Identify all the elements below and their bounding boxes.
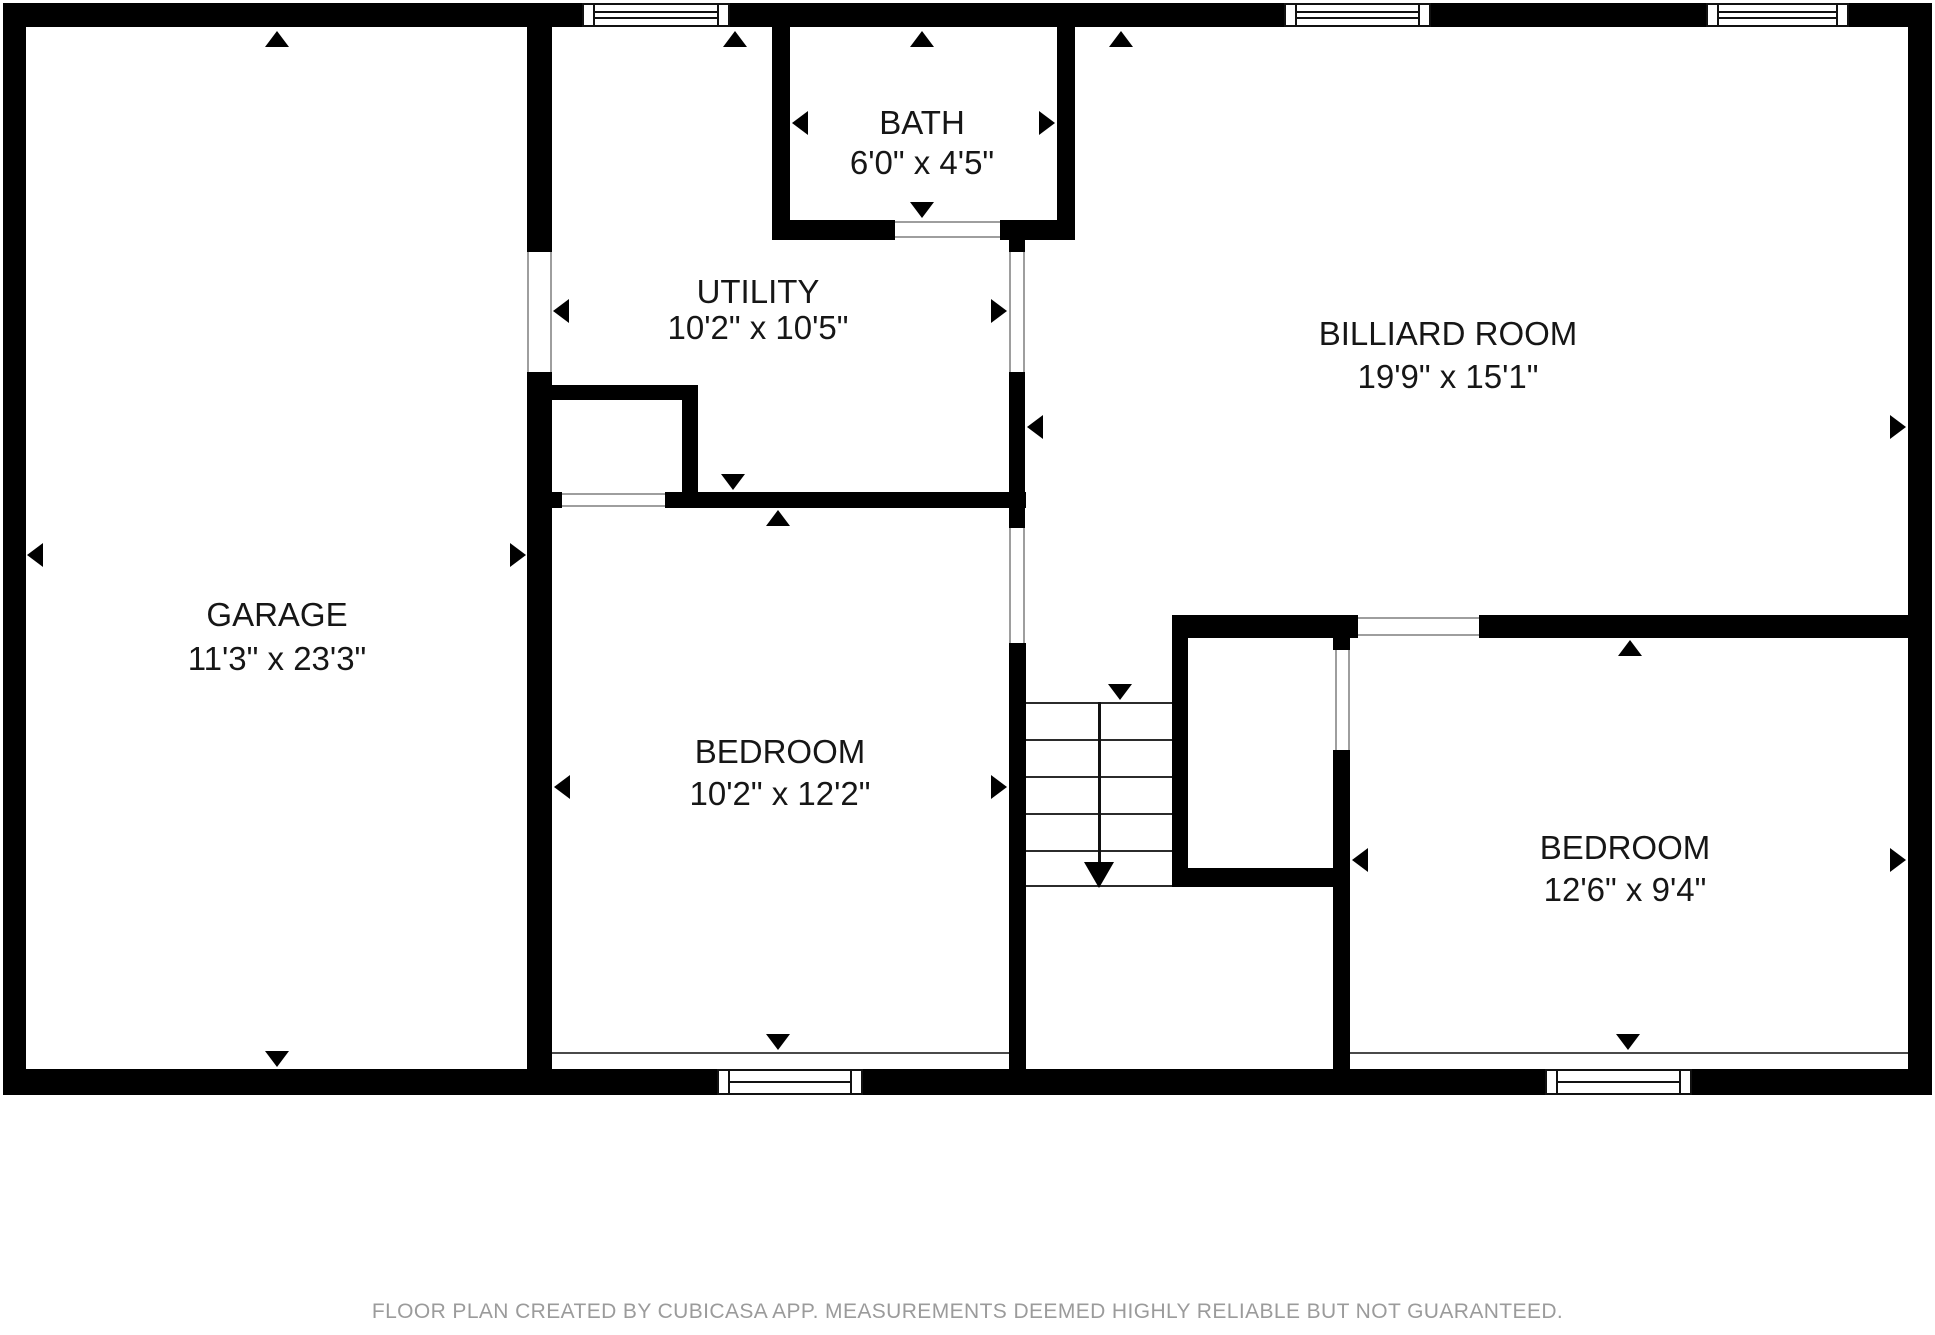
stairs-direction-line bbox=[1098, 702, 1101, 862]
measure-arrow-up-icon bbox=[1109, 31, 1133, 47]
window-glass-line bbox=[1296, 11, 1419, 13]
measure-arrow-down-icon bbox=[766, 1034, 790, 1050]
wall-segment bbox=[1333, 750, 1350, 887]
measure-arrow-up-icon bbox=[766, 510, 790, 526]
measure-arrow-down-icon bbox=[910, 202, 934, 218]
measure-arrow-right-icon bbox=[1039, 111, 1055, 135]
wall-segment bbox=[772, 220, 895, 240]
wall-segment bbox=[1009, 643, 1026, 1069]
door-opening-line bbox=[1009, 252, 1011, 372]
window-glass-line bbox=[594, 17, 718, 19]
wall-segment bbox=[1009, 508, 1025, 528]
measure-arrow-down-icon bbox=[265, 1051, 289, 1067]
door-opening-line bbox=[1023, 528, 1025, 643]
door-opening-line bbox=[562, 493, 665, 495]
wall-segment bbox=[682, 400, 698, 492]
wall-segment bbox=[772, 27, 790, 237]
wall-segment bbox=[548, 385, 698, 400]
wall-segment bbox=[1009, 237, 1025, 252]
room-boundary-line bbox=[552, 1052, 1009, 1054]
wall-segment bbox=[1057, 27, 1075, 237]
wall-segment bbox=[863, 1069, 1545, 1095]
measure-arrow-left-icon bbox=[1027, 415, 1043, 439]
door-opening-line bbox=[1358, 617, 1479, 619]
door-opening-line bbox=[895, 221, 1000, 223]
window-frame-line bbox=[1418, 5, 1420, 25]
measure-arrow-up-icon bbox=[723, 31, 747, 47]
wall-segment bbox=[1431, 3, 1706, 27]
door-opening-line bbox=[1023, 252, 1025, 372]
window bbox=[1545, 1069, 1692, 1095]
window-frame-line bbox=[1717, 5, 1719, 25]
footer-disclaimer: FLOOR PLAN CREATED BY CUBICASA APP. MEAS… bbox=[372, 1300, 1563, 1324]
window-glass-line bbox=[1718, 11, 1837, 13]
window bbox=[717, 1069, 863, 1095]
door-opening-line bbox=[1335, 650, 1337, 750]
window-frame-line bbox=[593, 5, 595, 25]
measure-arrow-down-icon bbox=[1616, 1034, 1640, 1050]
measure-arrow-right-icon bbox=[510, 543, 526, 567]
wall-segment bbox=[527, 372, 552, 1069]
room-label-garage: GARAGE bbox=[206, 596, 347, 634]
measure-arrow-up-icon bbox=[1618, 640, 1642, 656]
measure-arrow-right-icon bbox=[991, 775, 1007, 799]
measure-arrow-down-icon bbox=[1108, 684, 1132, 700]
wall-segment bbox=[1333, 887, 1350, 1069]
window-glass-line bbox=[1296, 17, 1419, 19]
window bbox=[582, 3, 730, 27]
window-glass-line bbox=[1718, 17, 1837, 19]
window-glass-line bbox=[1557, 1081, 1680, 1083]
window bbox=[1284, 3, 1431, 27]
measure-arrow-right-icon bbox=[1890, 848, 1906, 872]
room-label-billiard-room: BILLIARD ROOM bbox=[1319, 315, 1578, 353]
door-opening-line bbox=[550, 252, 552, 372]
window-frame-line bbox=[1836, 5, 1838, 25]
wall-segment bbox=[1479, 615, 1908, 638]
door-opening-line bbox=[1358, 634, 1479, 636]
measure-arrow-right-icon bbox=[991, 299, 1007, 323]
measure-arrow-left-icon bbox=[27, 543, 43, 567]
door-opening-line bbox=[1348, 650, 1350, 750]
window bbox=[1706, 3, 1849, 27]
room-boundary-line bbox=[1350, 1052, 1908, 1054]
wall-segment bbox=[1692, 1069, 1932, 1095]
room-dims-bedroom-right: 12'6" x 9'4" bbox=[1544, 871, 1707, 909]
measure-arrow-right-icon bbox=[1890, 415, 1906, 439]
wall-segment bbox=[1908, 3, 1932, 1095]
room-dims-utility: 10'2" x 10'5" bbox=[668, 309, 849, 347]
wall-segment bbox=[527, 27, 552, 252]
wall-segment bbox=[1009, 372, 1025, 492]
wall-segment bbox=[3, 3, 26, 1095]
measure-arrow-up-icon bbox=[265, 31, 289, 47]
wall-segment bbox=[1172, 615, 1188, 887]
wall-segment bbox=[3, 3, 582, 27]
measure-arrow-left-icon bbox=[553, 299, 569, 323]
wall-segment bbox=[1333, 638, 1350, 650]
room-dims-bedroom-left: 10'2" x 12'2" bbox=[690, 775, 871, 813]
room-label-utility: UTILITY bbox=[697, 273, 820, 311]
window-glass-line bbox=[594, 11, 718, 13]
wall-segment bbox=[665, 492, 1026, 508]
measure-arrow-left-icon bbox=[554, 775, 570, 799]
measure-arrow-up-icon bbox=[910, 31, 934, 47]
wall-segment bbox=[1172, 615, 1358, 638]
room-label-bedroom-left: BEDROOM bbox=[695, 733, 866, 771]
room-dims-garage: 11'3" x 23'3" bbox=[188, 640, 367, 678]
stairs-direction-arrow-icon bbox=[1084, 862, 1114, 888]
measure-arrow-down-icon bbox=[721, 474, 745, 490]
room-dims-bath: 6'0" x 4'5" bbox=[850, 144, 994, 182]
floor-plan-canvas: FLOOR PLAN CREATED BY CUBICASA APP. MEAS… bbox=[0, 0, 1935, 1335]
wall-segment bbox=[3, 1069, 717, 1095]
room-dims-billiard-room: 19'9" x 15'1" bbox=[1358, 358, 1539, 396]
door-opening-line bbox=[895, 236, 1000, 238]
measure-arrow-left-icon bbox=[1352, 848, 1368, 872]
window-frame-line bbox=[1295, 5, 1297, 25]
door-opening-line bbox=[1009, 528, 1011, 643]
window-frame-line bbox=[717, 5, 719, 25]
room-label-bedroom-right: BEDROOM bbox=[1540, 829, 1711, 867]
wall-segment bbox=[730, 3, 1284, 27]
window-glass-line bbox=[729, 1081, 851, 1083]
door-opening-line bbox=[562, 505, 665, 507]
wall-segment bbox=[1172, 868, 1350, 887]
door-opening-line bbox=[527, 252, 529, 372]
measure-arrow-left-icon bbox=[792, 111, 808, 135]
room-label-bath: BATH bbox=[879, 104, 965, 142]
wall-segment bbox=[552, 492, 562, 508]
